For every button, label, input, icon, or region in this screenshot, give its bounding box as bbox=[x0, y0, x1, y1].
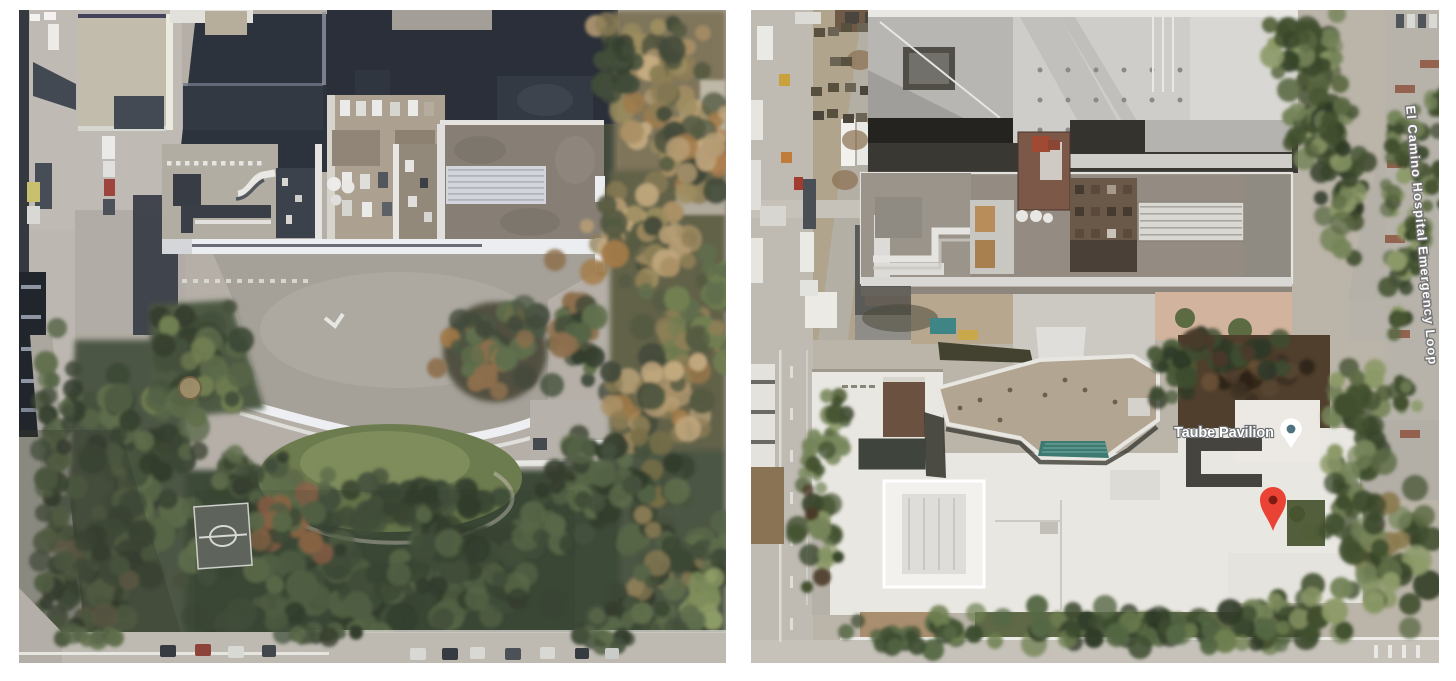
svg-text:Taube Pavilion: Taube Pavilion bbox=[1174, 425, 1274, 441]
